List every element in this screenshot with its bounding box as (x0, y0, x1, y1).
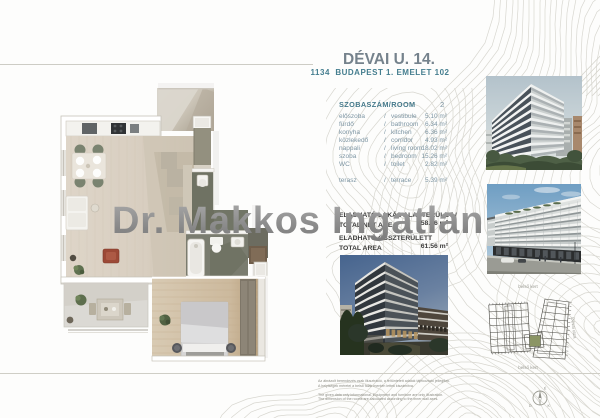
svg-text:D: D (529, 404, 532, 408)
svg-text:K: K (548, 404, 551, 408)
svg-text:É: É (544, 386, 547, 391)
